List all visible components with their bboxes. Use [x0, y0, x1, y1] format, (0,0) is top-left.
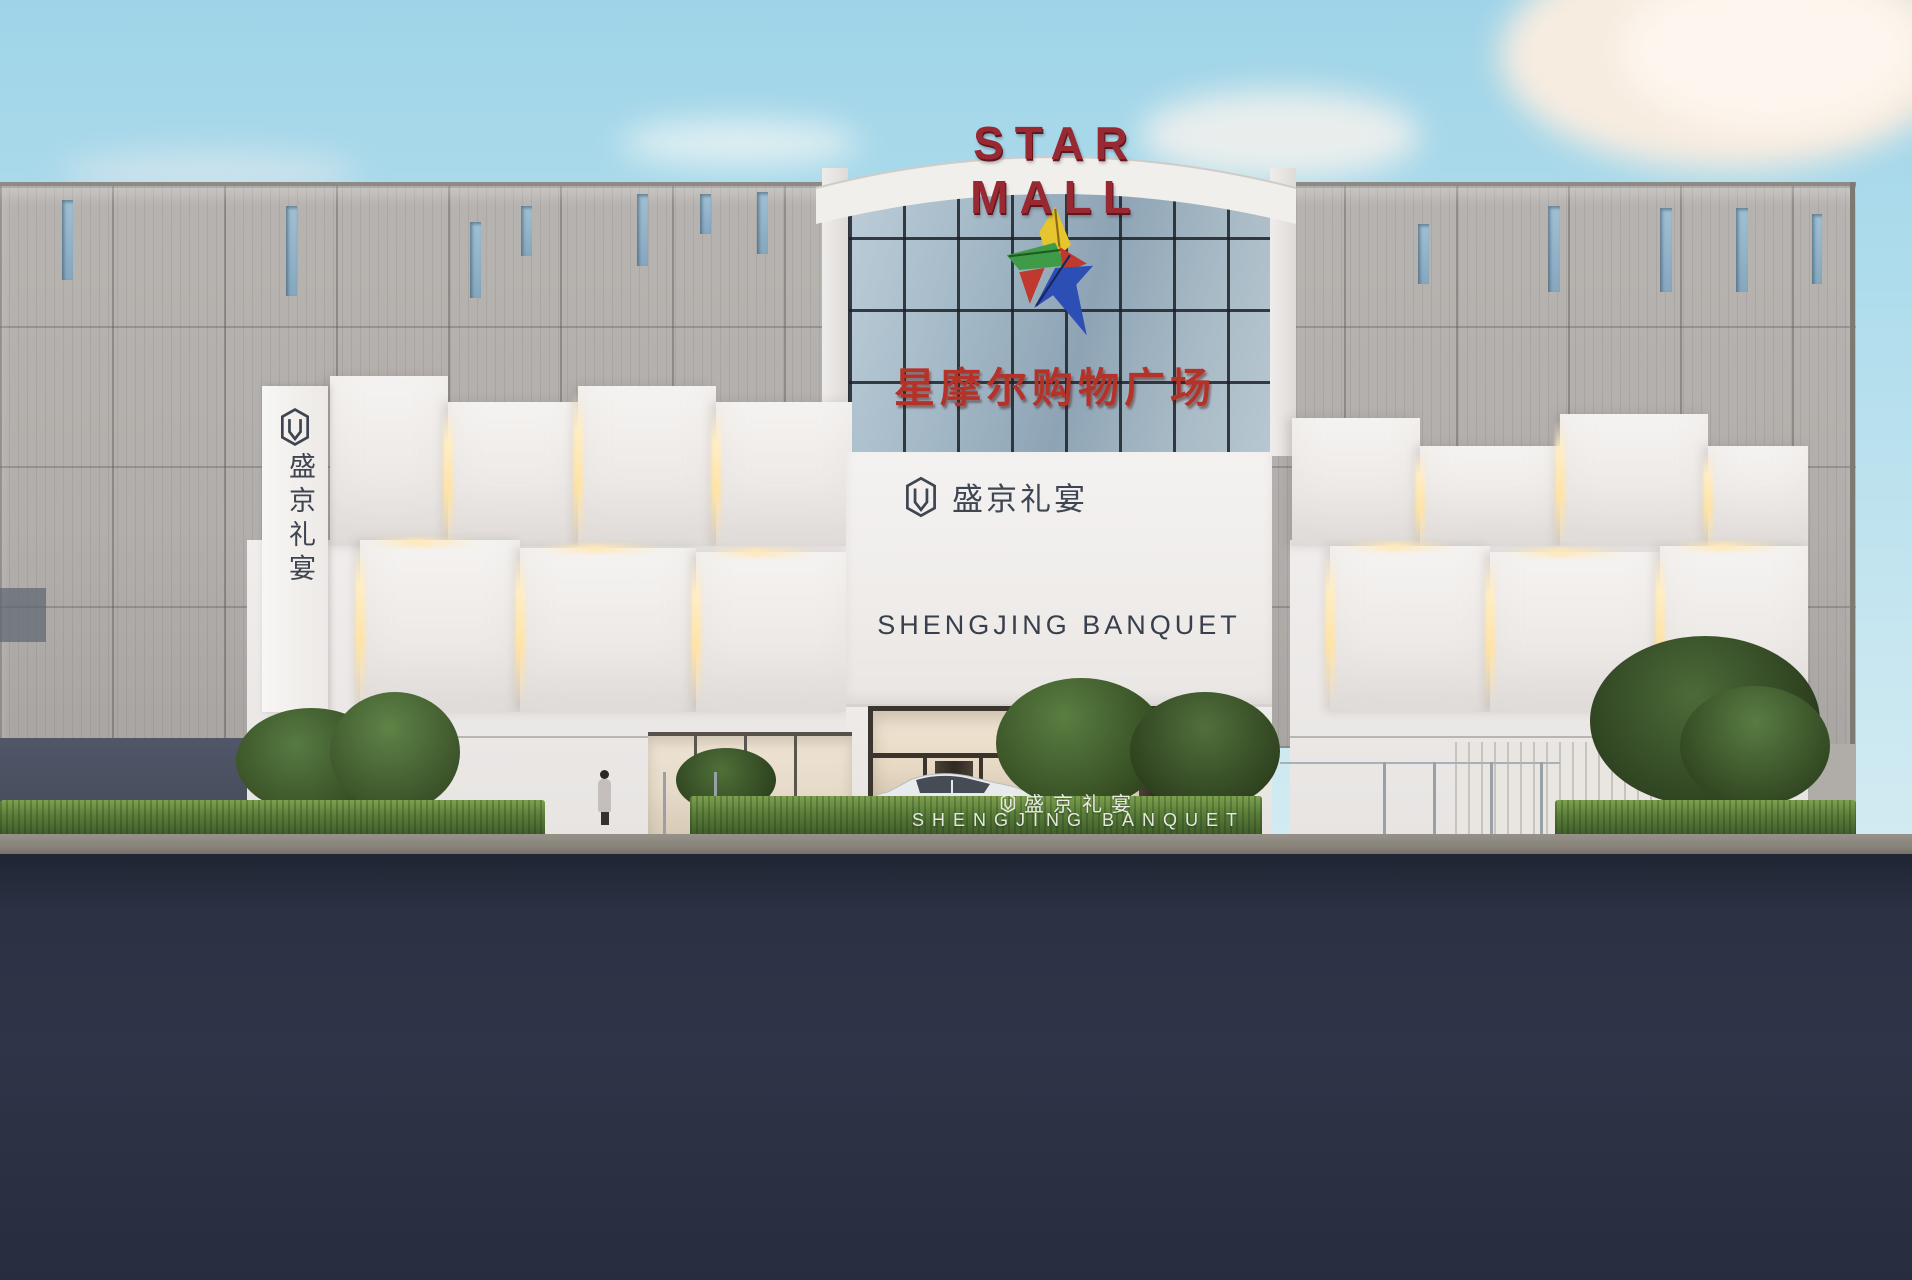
cove-light [540, 544, 660, 553]
street-tree [1680, 686, 1830, 806]
bush [1130, 692, 1280, 810]
facade-window-slit [757, 192, 768, 254]
sculpted-panel [448, 402, 578, 546]
banquet-en-sign: SHENGJING BANQUET [846, 610, 1272, 641]
sculpted-panel [330, 376, 448, 546]
pedestrian [598, 770, 611, 825]
glass-railing-post [1490, 762, 1493, 838]
sidewalk-curb [0, 834, 1912, 856]
facade-window-slit [1548, 206, 1560, 292]
cove-light [443, 408, 453, 546]
facade-window-slit [470, 222, 481, 298]
bush [330, 692, 460, 812]
cove-light [1415, 452, 1425, 546]
star-mall-sign: STAR MALL [878, 116, 1234, 224]
hedge [1555, 800, 1856, 838]
cove-light [1703, 452, 1713, 546]
sculpted-panel [520, 548, 696, 712]
hedge [0, 800, 545, 838]
cove-light [711, 408, 721, 546]
cove-light [706, 548, 816, 557]
facade-window-slit [637, 194, 648, 266]
sculpted-panel [1420, 446, 1560, 546]
facade-recess [0, 588, 46, 642]
cove-light [355, 546, 365, 706]
vertical-banquet-sign-text: 盛京礼宴 [281, 452, 320, 588]
banquet-facade-panel: 盛京礼宴 SHENGJING BANQUET [846, 452, 1272, 704]
road [0, 854, 1912, 1280]
glass-railing-post [1540, 762, 1543, 838]
banquet-logo-icon [279, 408, 311, 446]
facade-window-slit [286, 206, 297, 296]
sculpted-panel [360, 540, 520, 712]
facade-window-slit [700, 194, 711, 234]
sculpted-panel [1708, 446, 1808, 546]
cove-light [573, 392, 583, 546]
banquet-logo-icon [904, 476, 938, 518]
facade-window-slit [1812, 214, 1822, 284]
glass-railing-post [663, 772, 666, 842]
glass-railing-post [1433, 762, 1436, 838]
cove-light [691, 558, 701, 706]
cove-light [515, 554, 525, 706]
sculpted-panel [578, 386, 716, 546]
cove-light [1672, 542, 1782, 551]
pedestrian-body [598, 779, 611, 812]
scene-canvas: 星摩尔购物广场 STAR MALL 盛京礼宴 [0, 0, 1912, 1280]
banquet-logo-row: 盛京礼宴 [904, 474, 1088, 519]
sculpted-panel [1560, 414, 1708, 546]
cove-light [1505, 548, 1625, 557]
facade-window-slit [521, 206, 532, 256]
cove-light [1345, 542, 1455, 551]
cove-light [368, 538, 478, 547]
facade-window-slit [1736, 208, 1748, 292]
cove-light [1555, 420, 1565, 546]
building-edge-shadow [1850, 182, 1855, 744]
sculpted-panel [1292, 418, 1420, 546]
facade-window-slit [1418, 224, 1429, 284]
pedestrian-legs [601, 812, 609, 825]
facade-window-slit [62, 200, 73, 280]
facade-window-slit [1660, 208, 1672, 292]
sculpted-panel [696, 552, 852, 712]
glass-railing-post [1383, 762, 1386, 838]
sculpted-panel [1330, 546, 1490, 712]
cove-light [1485, 558, 1495, 706]
mall-cn-sign: 星摩尔购物广场 [880, 354, 1230, 414]
glass-railing-rail [1280, 762, 1560, 764]
hedge-en-sign: SHENGJING BANQUET [912, 810, 1245, 831]
pedestrian-head [600, 770, 609, 779]
vertical-banquet-sign: 盛京礼宴 [262, 386, 328, 712]
banquet-cn-sign: 盛京礼宴 [952, 474, 1088, 519]
sculpted-panel [716, 402, 852, 546]
cove-light [1325, 552, 1335, 706]
